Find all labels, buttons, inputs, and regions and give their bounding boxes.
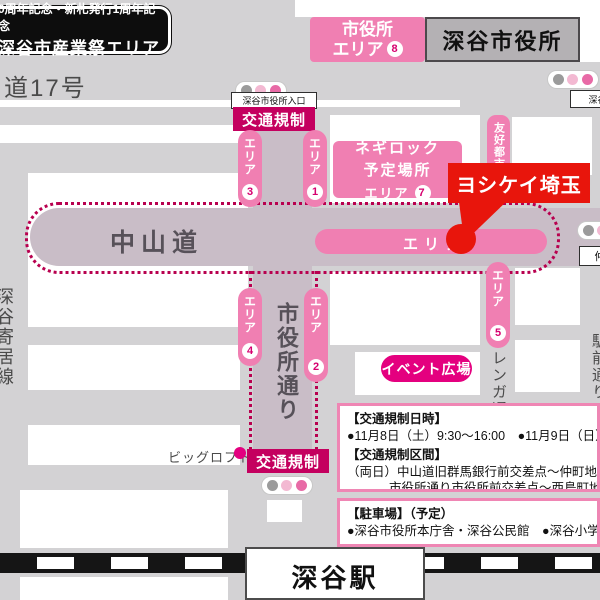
regulation-datetime-heading: 【交通規制日時】 (347, 411, 590, 428)
festival-area-map: 中山道 市役所通り 深谷寄居線 レンガ通り 駅前通り 道17号 0周年記念・新札… (0, 0, 600, 600)
map-block (515, 268, 580, 325)
map-block (20, 577, 228, 600)
traffic-light-lightpink-dot (281, 480, 292, 491)
map-block (267, 500, 302, 522)
regulation-section-text2: 市役所通り市役所前交差点～西島町地内 (347, 480, 590, 492)
parking-text: ●深谷市役所本庁舎・深谷公民館 ●深谷小学校 (347, 523, 590, 540)
traffic-light-icon (578, 222, 600, 239)
map-block (578, 0, 600, 62)
map-block (28, 345, 240, 390)
traffic-light-gray-dot (553, 74, 564, 85)
fukaya-yorii-line-label: 深谷寄居線 (0, 287, 17, 387)
city-hall-area-box: 市役所 エリア 8 (310, 17, 425, 62)
area-number-badge: 2 (308, 359, 324, 375)
map-title-badge: 0周年記念・新札発行1周年記念 深谷市産業祭エリア (0, 6, 171, 54)
traffic-light-pink-dot (582, 74, 593, 85)
regulation-datetime-text: ●11月8日（土）9:30～16:00 ●11月9日（日）9: (347, 428, 590, 445)
area-number-badge: 4 (242, 343, 258, 359)
area-2-pill: エリア 2 (304, 288, 328, 382)
negi-rock-area-row: エリア 7 (364, 183, 430, 202)
area-label: エリア (242, 295, 259, 334)
badge-line2: 深谷市産業祭エリア (0, 34, 160, 59)
traffic-light-pink-dot (296, 480, 307, 491)
traffic-light-lightpink-dot (567, 74, 578, 85)
regulation-section-heading: 【交通規制区間】 (347, 447, 590, 464)
city-hall-area-label: エリア (333, 40, 384, 60)
fukaya-station-signal-label: 深谷駅 (570, 90, 600, 108)
map-block (330, 272, 480, 345)
map-block (515, 340, 580, 392)
traffic-light-gray-dot (583, 225, 594, 236)
map-block (0, 125, 250, 143)
area-label: エリア (242, 137, 259, 176)
location-dot-icon (446, 224, 476, 254)
negi-rock-box: ネギロック 予定場所 エリア 7 (333, 141, 462, 198)
yoshikei-callout: ヨシケイ埼玉 (448, 163, 590, 203)
area-number-badge: 3 (242, 184, 258, 200)
fukaya-station-box: 深谷駅 (245, 547, 425, 600)
event-plaza-box: イベント広場 (381, 355, 472, 382)
traffic-regulation-sign-north: 交通規制 (233, 107, 315, 131)
area-6-bar: エリア (315, 229, 547, 254)
map-block (20, 490, 228, 548)
traffic-light-icon (262, 477, 312, 494)
big-loft-dot-icon (234, 447, 246, 459)
area-number-badge: 5 (490, 325, 506, 341)
ekimae-street-label: 駅前通り (588, 333, 600, 401)
area-number-badge: 8 (387, 41, 403, 57)
area-1-pill: エリア 1 (303, 130, 327, 207)
city-hall-area-line1: 市役所 (342, 20, 393, 40)
area-3-pill: エリア 3 (238, 130, 262, 207)
area-label: エリア (490, 269, 507, 308)
traffic-regulation-sign-south: 交通規制 (247, 449, 329, 473)
traffic-light-icon (548, 71, 598, 88)
city-hall-area-line2: エリア 8 (333, 40, 403, 60)
area-4-pill: エリア 4 (238, 288, 262, 366)
map-block (295, 0, 600, 17)
city-hall-building: 深谷市役所 (425, 17, 580, 62)
parking-heading: 【駐車場】（予定） (347, 506, 590, 523)
traffic-light-gray-dot (267, 480, 278, 491)
naka-signal-label: 仲 (579, 246, 600, 266)
area-label: エリア (308, 295, 325, 334)
area-number-badge: 7 (415, 185, 431, 201)
area-label: エリア (307, 137, 324, 176)
route17-label: 道17号 (4, 68, 87, 103)
parking-info-box: 【駐車場】（予定） ●深谷市役所本庁舎・深谷公民館 ●深谷小学校 (337, 498, 600, 547)
regulation-section-text1: （両日）中山道旧群馬銀行前交差点～仲町地内駅 (347, 464, 590, 481)
area-number-badge: 1 (307, 184, 323, 200)
shiyakusho-street-label: 市役所通り (270, 302, 302, 422)
nakasendo-label: 中山道 (110, 223, 203, 259)
negi-rock-line2: 予定場所 (363, 159, 431, 180)
badge-line1: 0周年記念・新札発行1周年記念 (0, 0, 160, 34)
regulation-info-box: 【交通規制日時】 ●11月8日（土）9:30～16:00 ●11月9日（日）9:… (337, 403, 600, 492)
negi-rock-line1: ネギロック (355, 137, 440, 158)
area-label: エリア (364, 183, 409, 202)
area-5-pill: エリア 5 (486, 262, 510, 348)
